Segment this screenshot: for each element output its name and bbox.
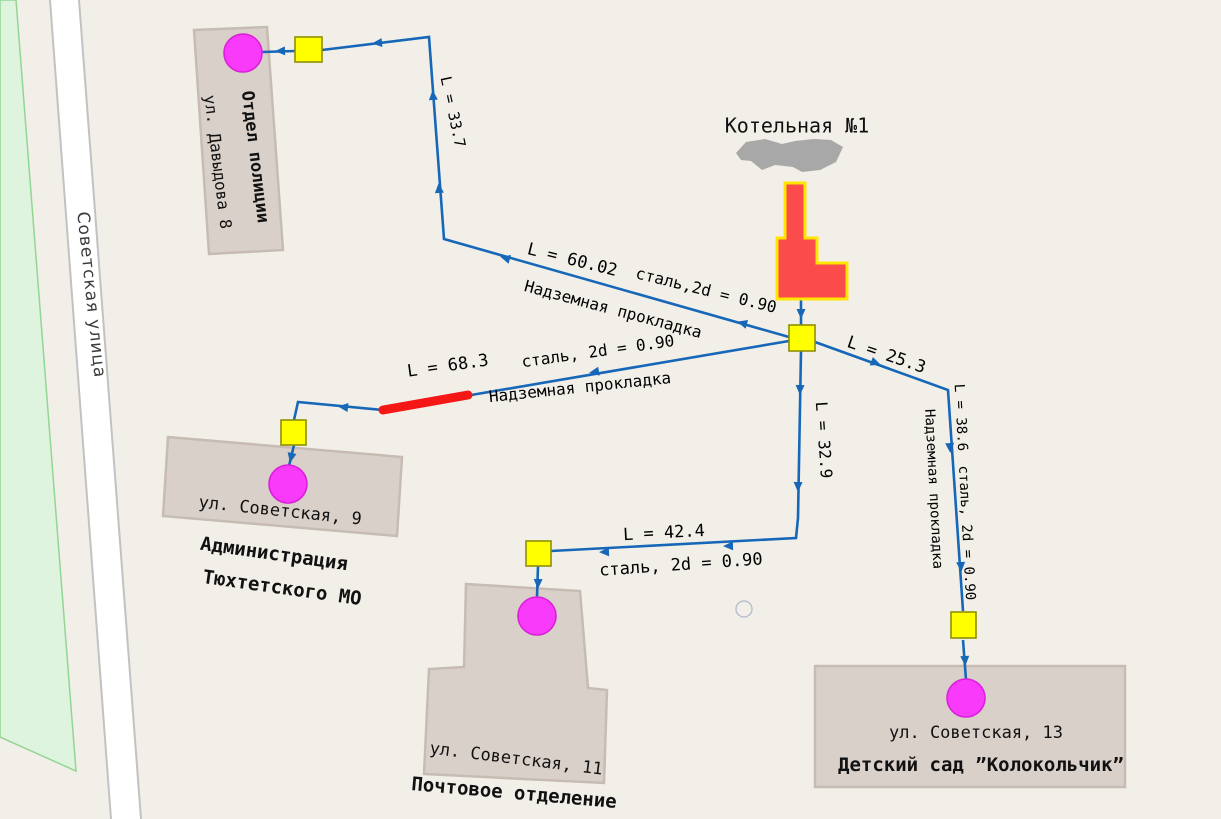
- consumer-post[interactable]: [518, 597, 556, 635]
- flow-arrow: [797, 309, 806, 319]
- source-boiler-shape[interactable]: [777, 183, 847, 299]
- consumer-police[interactable]: [224, 34, 262, 72]
- consumer-kindergarten[interactable]: [947, 679, 985, 717]
- smoke-shape: [736, 139, 843, 172]
- node-police[interactable]: [295, 37, 322, 62]
- source-label: Котельная №1: [725, 116, 870, 137]
- flow-arrow: [960, 656, 970, 666]
- flow-arrow: [795, 385, 804, 395]
- flow-arrow: [338, 402, 349, 412]
- flow-arrow: [434, 183, 444, 194]
- consumer-admin[interactable]: [269, 465, 307, 503]
- node-post[interactable]: [526, 541, 551, 566]
- flow-arrow: [372, 38, 383, 48]
- pipe-to-kindergarten[interactable]: [815, 342, 963, 611]
- building-kindergarten-name: Детский сад ”Колокольчик”: [838, 756, 1124, 776]
- heat-network-map: Советская улица Котельная №1 Отдел полиц…: [0, 0, 1221, 819]
- building-kindergarten-address: ул. Советская, 13: [889, 725, 1063, 743]
- map-circle-marker: [736, 601, 752, 617]
- node-kindergarten[interactable]: [951, 612, 976, 638]
- flow-arrow: [428, 90, 438, 101]
- flow-arrow: [275, 46, 285, 55]
- pipe-segment-disabled[interactable]: [383, 395, 468, 410]
- flow-arrow: [793, 482, 802, 492]
- node-junction[interactable]: [789, 325, 815, 351]
- node-admin[interactable]: [281, 420, 306, 445]
